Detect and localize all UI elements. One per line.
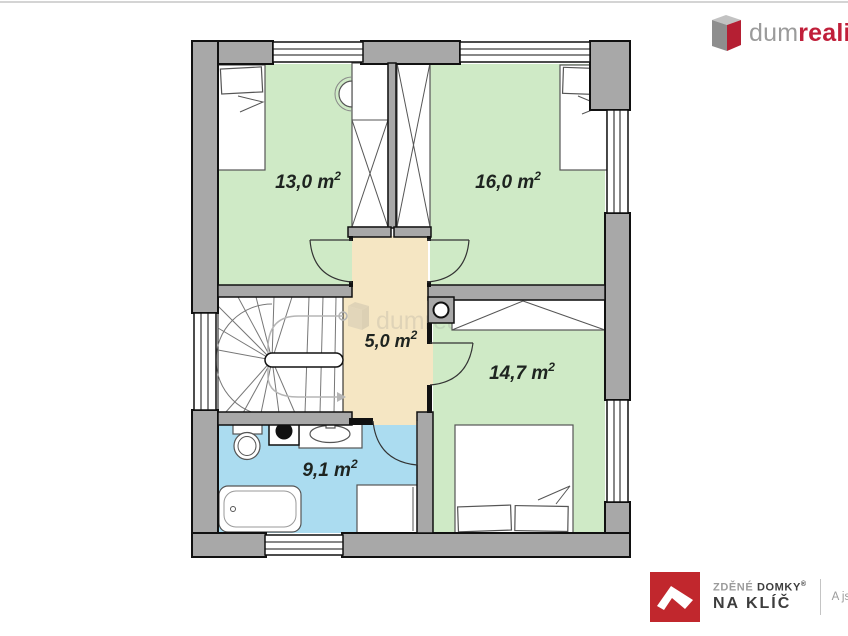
- bed-single-left-icon: [218, 65, 265, 170]
- wall-stub: [427, 323, 432, 344]
- logo-divider: [820, 579, 821, 615]
- shower-icon: [357, 485, 420, 533]
- zdene-domky-logo: ZDĚNÉ DOMKY® NA KLÍČ A jste doma: [650, 572, 848, 622]
- dumrealit-wordmark: dumrealit.cz: [749, 21, 848, 52]
- wordmark-accent: realit: [798, 19, 848, 47]
- bathroom-top-wall: [349, 418, 373, 425]
- wardrobe-left-icon: [352, 63, 388, 227]
- area-label-hall: 5,0 m2: [365, 328, 418, 351]
- wall-bath-bedroom: [417, 412, 433, 533]
- logo-line2-dark: KLÍČ: [746, 595, 791, 612]
- wall-between-top-bedrooms: [388, 63, 396, 228]
- stairwell-bottom-wall: [218, 412, 352, 425]
- wordmark-prefix: dum: [749, 19, 798, 47]
- wardrobe-left-base-wall: [348, 227, 391, 237]
- wall-right-middle: [605, 213, 630, 400]
- vent-pipe-icon: [428, 297, 454, 323]
- window-right-upper: [607, 110, 628, 213]
- stairs-handrail: [265, 353, 343, 367]
- logo-line1: ZDĚNÉ DOMKY®: [713, 581, 807, 594]
- area-label-bedroom-top-left: 13,0 m2: [275, 169, 341, 193]
- stairwell-top-wall: [218, 285, 352, 297]
- bed-double-icon: [455, 425, 573, 533]
- logo-tagline: A jste doma: [832, 591, 848, 603]
- area-label-bathroom: 9,1 m2: [302, 457, 358, 481]
- area-label-bedroom-top-right: 16,0 m2: [475, 169, 541, 193]
- logo-line2-light: NA: [713, 595, 740, 612]
- logo-line1-dark: DOMKY: [757, 582, 801, 594]
- page: { "floorplan": { "rooms": [ { "id": "bed…: [0, 0, 848, 636]
- logo-line1-light: ZDĚNÉ: [713, 582, 753, 594]
- zdene-domky-text: ZDĚNÉ DOMKY® NA KLÍČ: [713, 581, 807, 613]
- dumrealit-cube-icon: [711, 13, 742, 52]
- wardrobe-right-icon: [397, 63, 430, 227]
- sink-icon: [299, 422, 362, 448]
- wall-bottom-left: [192, 533, 266, 557]
- window-top-left: [273, 42, 363, 62]
- window-bottom: [265, 535, 343, 555]
- toilet-icon: [233, 424, 262, 460]
- wardrobe-bottom-icon: [452, 300, 605, 330]
- area-label-bedroom-bottom-right: 14,7 m2: [489, 360, 555, 384]
- watermark-cube-front: [348, 306, 362, 330]
- window-right-lower: [607, 400, 628, 502]
- window-top-right: [460, 42, 590, 62]
- bedroom-door-threshold: [428, 343, 433, 385]
- registered-mark: ®: [801, 581, 807, 588]
- wall-left-upper: [192, 41, 218, 313]
- dumrealit-logo: dumrealit.cz: [711, 13, 848, 52]
- wall-bottom-right: [342, 533, 630, 557]
- wall-top-right-corner: [590, 41, 630, 110]
- logo-line2: NA KLÍČ: [713, 595, 807, 613]
- wall-stub: [427, 385, 432, 413]
- window-left: [194, 313, 216, 410]
- bathroom-door-threshold: [373, 418, 417, 425]
- wardrobe-right-base-wall: [394, 227, 431, 237]
- floor-plan: dumrealit.cz: [0, 0, 848, 636]
- bathtub-icon: [219, 486, 301, 532]
- wall-top-middle: [361, 41, 460, 64]
- watermark-cube-side: [362, 306, 369, 330]
- roof-icon: [650, 572, 700, 622]
